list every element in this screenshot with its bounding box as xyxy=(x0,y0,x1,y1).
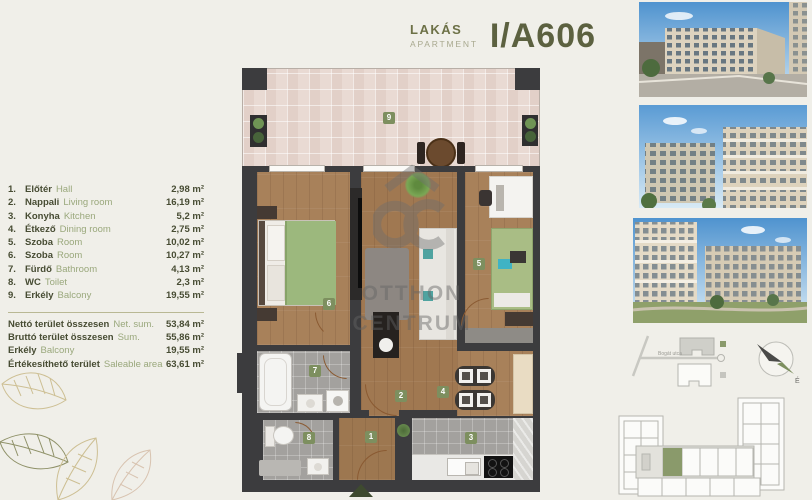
room-num: 9. xyxy=(8,290,25,301)
otthon-centrum-logo-watermark xyxy=(373,164,451,260)
total-row: Nettó terület összesenNet. sum.53,84 m² xyxy=(8,319,204,332)
unit-number: I/A606 xyxy=(490,18,596,54)
balcony-plant xyxy=(250,115,267,147)
wall-pillar xyxy=(515,68,540,90)
room-area: 4,13 m² xyxy=(171,264,204,275)
total-area: 19,55 m² xyxy=(166,345,204,356)
total-area: 63,61 m² xyxy=(166,359,204,370)
legend-row: 9.ErkélyBalcony19,55 m² xyxy=(8,290,204,303)
bath-mat xyxy=(259,460,301,476)
total-name-en: Net. sum. xyxy=(113,319,166,330)
room-name-en: Dining room xyxy=(60,224,172,235)
room-badge-room5: 5 xyxy=(473,258,485,270)
total-area: 55,86 m² xyxy=(166,332,204,343)
kitchen-sink xyxy=(447,458,481,476)
wall-pillar xyxy=(242,68,267,90)
bathtub xyxy=(259,353,292,411)
highlighted-unit xyxy=(663,448,682,476)
legend-row: 1.ElőtérHall2,98 m² xyxy=(8,184,204,197)
balcony-chair xyxy=(417,142,425,164)
room-num: 5. xyxy=(8,237,25,248)
floorplan-sheet: { "header": { "label_hu": "LAKÁS", "labe… xyxy=(0,0,812,500)
desk-chair xyxy=(479,190,492,206)
room-name-en: Bathroom xyxy=(56,264,171,275)
balcony-plant xyxy=(522,115,538,146)
building-key-plan xyxy=(616,396,808,498)
room-name-en: Room xyxy=(57,237,166,248)
wall-segment xyxy=(399,410,457,418)
room-area: 16,19 m² xyxy=(166,197,204,208)
room-name-en: Room xyxy=(57,250,166,261)
room-num: 1. xyxy=(8,184,25,195)
room-badge-living: 2 xyxy=(395,390,407,402)
balcony-window xyxy=(475,165,523,172)
room-num: 8. xyxy=(8,277,25,288)
room-name-en: Hall xyxy=(56,184,171,195)
balcony-window xyxy=(269,165,325,172)
nightstand xyxy=(257,206,277,219)
room-name-en: Toilet xyxy=(45,277,177,288)
watermark-text-2: CENTRUM xyxy=(343,312,481,336)
stove xyxy=(484,456,513,478)
legend-row: 3.KonyhaKitchen5,2 m² xyxy=(8,211,204,224)
room-badge-wc: 8 xyxy=(303,432,315,444)
legend-row: 4.ÉtkezőDining room2,75 m² xyxy=(8,224,204,237)
room-area: 19,55 m² xyxy=(166,290,204,301)
room-area: 2,3 m² xyxy=(177,277,204,288)
label-hu: LAKÁS xyxy=(410,22,478,37)
room-name-hu: Erkély xyxy=(25,290,54,301)
building-photo-1 xyxy=(639,2,807,97)
entrance-arrow xyxy=(349,484,373,497)
hall-plant xyxy=(397,424,410,437)
legend-row: 7.FürdőBathroom4,13 m² xyxy=(8,264,204,277)
room-num: 7. xyxy=(8,264,25,275)
building-photo-3 xyxy=(633,218,807,323)
room-name-hu: Nappali xyxy=(25,197,59,208)
total-area: 53,84 m² xyxy=(166,319,204,330)
room-badge-dining: 4 xyxy=(437,386,449,398)
bed-single xyxy=(491,228,533,310)
watermark-text-1: OTTHON xyxy=(349,282,475,306)
room-num: 6. xyxy=(8,250,25,261)
room-badge-room6: 6 xyxy=(323,298,335,310)
room-num: 3. xyxy=(8,211,25,222)
legend-row: 6.SzobaRoom10,27 m² xyxy=(8,250,204,263)
total-name-hu: Nettó terület összesen xyxy=(8,319,109,330)
compass-icon: É xyxy=(748,334,808,396)
kitchen-counter-marble xyxy=(513,418,533,480)
bathroom-sink xyxy=(297,394,323,412)
legend-divider xyxy=(8,312,204,313)
room-area: 2,98 m² xyxy=(171,184,204,195)
room-badge-balcony: 9 xyxy=(383,112,395,124)
room-name-hu: Szoba xyxy=(25,237,53,248)
room-badge-hall: 1 xyxy=(365,431,377,443)
room-num: 4. xyxy=(8,224,25,235)
legend-row: 8.WCToilet2,3 m² xyxy=(8,277,204,290)
desk xyxy=(489,176,533,218)
room-name-en: Living room xyxy=(63,197,166,208)
legend-row: 5.SzobaRoom10,02 m² xyxy=(8,237,204,250)
street-label: Bogát utca xyxy=(658,351,682,357)
floor-plan: 9 6 2 5 7 8 1 3 4 OTTHON CENTRUM xyxy=(237,60,545,492)
label-en: APARTMENT xyxy=(410,39,478,49)
apartment-label: LAKÁS APARTMENT xyxy=(410,18,478,49)
room-name-en: Balcony xyxy=(58,290,166,301)
room-name-hu: Étkező xyxy=(25,224,56,235)
washing-machine xyxy=(326,390,349,412)
room-area: 10,02 m² xyxy=(166,237,204,248)
nightstand xyxy=(257,308,277,321)
room-name-hu: Előtér xyxy=(25,184,52,195)
wall-step xyxy=(237,353,243,393)
nightstand xyxy=(505,312,533,326)
bed-double xyxy=(258,220,335,306)
room-num: 2. xyxy=(8,197,25,208)
room-badge-kitchen: 3 xyxy=(465,432,477,444)
room-area: 5,2 m² xyxy=(177,211,204,222)
wall-segment xyxy=(361,410,369,418)
room-name-en: Kitchen xyxy=(64,211,177,222)
tall-cabinet xyxy=(513,354,533,414)
toilet-bowl xyxy=(273,426,294,445)
leaf-decoration xyxy=(0,338,160,500)
dining-table xyxy=(455,390,495,410)
building-photo-2 xyxy=(639,105,807,208)
room-name-hu: Fürdő xyxy=(25,264,52,275)
balcony-chair xyxy=(457,142,465,164)
room-badge-bathroom: 7 xyxy=(309,365,321,377)
site-map: Bogát utca xyxy=(628,334,746,396)
room-name-hu: Konyha xyxy=(25,211,60,222)
dining-table xyxy=(455,366,495,386)
compass-label: É xyxy=(795,376,800,385)
room-area: 2,75 m² xyxy=(171,224,204,235)
legend-row: 2.NappaliLiving room16,19 m² xyxy=(8,197,204,210)
room-name-hu: Szoba xyxy=(25,250,53,261)
room-area: 10,27 m² xyxy=(166,250,204,261)
wc-sink xyxy=(307,458,329,475)
room-name-hu: WC xyxy=(25,277,41,288)
sheet-header: LAKÁS APARTMENT I/A606 xyxy=(410,18,596,54)
